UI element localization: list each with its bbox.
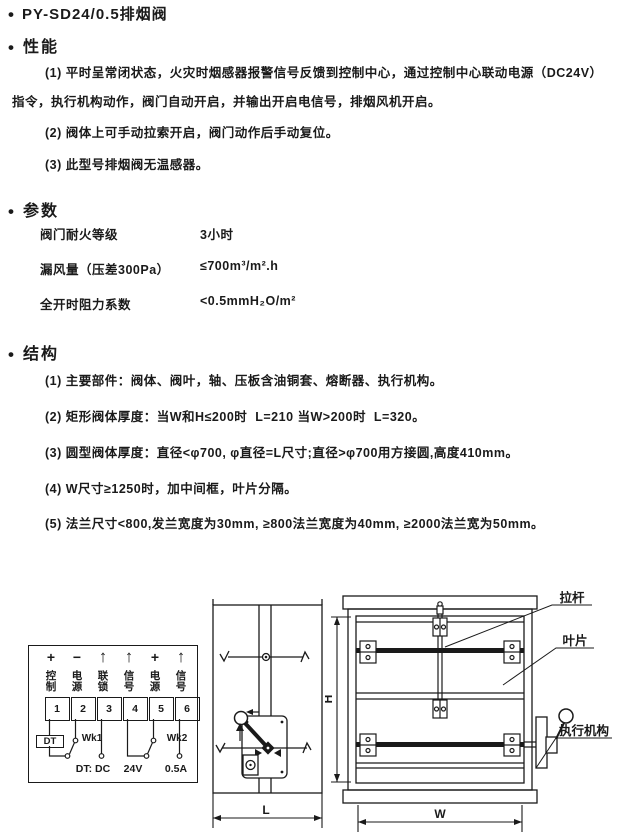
param-label: 漏风量（压差300Pa） (40, 259, 170, 278)
dt-box: DT (36, 735, 64, 748)
structure-item: (2) 矩形阀体厚度：当W和H≤200时 L=210 当W>200时 L=320… (45, 406, 425, 425)
param-label: 阀门耐火等级 (40, 224, 118, 243)
structure-item: (1) 主要部件：阀体、阀叶，轴、压板含油铜套、熔断器、执行机构。 (45, 370, 443, 389)
note-24v: 24V (120, 763, 146, 775)
param-value: 3小时 (200, 224, 233, 243)
note-05a: 0.5A (161, 763, 191, 775)
dim-w-label: W (434, 807, 446, 821)
wk1-label: Wk1 (81, 733, 103, 744)
wk2-label: Wk2 (163, 733, 191, 744)
page-root: •PY-SD24/0.5排烟阀 •性能 (1) 平时呈常闭状态，火灾时烟感器报警… (0, 0, 617, 838)
bullet-icon: • (8, 38, 16, 58)
leader-label-pull-rod: 拉杆 (559, 590, 585, 605)
doc-title: PY-SD24/0.5排烟阀 (22, 6, 168, 23)
param-label: 全开时阻力系数 (40, 294, 131, 313)
dim-h-label: H (325, 695, 335, 704)
wiring-wires-svg (29, 646, 196, 781)
structure-item: (4) W尺寸≥1250时，加中间框，叶片分隔。 (45, 478, 297, 497)
doc-title-line: •PY-SD24/0.5排烟阀 (8, 3, 168, 25)
section-heading-parameters: •参数 (8, 197, 59, 222)
bullet-icon: • (8, 5, 15, 25)
perf-item1-line2: 指令，执行机构动作，阀门自动开启，并输出开启电信号，排烟风机开启。 (12, 91, 441, 110)
perf-item3: (3) 此型号排烟阀无温感器。 (45, 154, 209, 173)
side-view-actuator-box (216, 709, 311, 778)
section-heading-structure: •结构 (8, 340, 59, 365)
section-heading-performance: •性能 (8, 33, 59, 58)
note-dt-dc: DT: DC (73, 763, 113, 775)
perf-item1-line1: (1) 平时呈常闭状态，火灾时烟感器报警信号反馈到控制中心，通过控制中心联动电源… (45, 62, 603, 81)
blade-shafts (356, 648, 524, 747)
param-value: ≤700m³/m².h (200, 259, 278, 273)
leader-label-blade: 叶片 (562, 633, 587, 648)
bullet-icon: • (8, 345, 16, 365)
structure-item: (5) 法兰尺寸<800,发兰宽度为30mm, ≥800法兰宽度为40mm, ≥… (45, 513, 544, 532)
param-value: <0.5mmH₂O/m² (200, 294, 296, 308)
wiring-diagram: + 控制 1 − 电源 2 ↑ 联锁 3 ↑ 信号 4 + 电源 5 ↑ 信号 … (28, 645, 198, 783)
structure-item: (3) 圆型阀体厚度：直径<φ700, φ直径=L尺寸;直径>φ700用方接圆,… (45, 442, 519, 461)
perf-item2: (2) 阀体上可手动拉索开启，阀门动作后手动复位。 (45, 122, 339, 141)
leader-label-actuator: 执行机构 (559, 723, 609, 738)
pull-rod (433, 602, 447, 718)
front-view-svg: 拉杆 叶片 执行机构 H W (325, 585, 617, 838)
bullet-icon: • (8, 202, 16, 222)
dim-l-label: L (262, 803, 269, 817)
side-view-svg: L (200, 588, 340, 838)
